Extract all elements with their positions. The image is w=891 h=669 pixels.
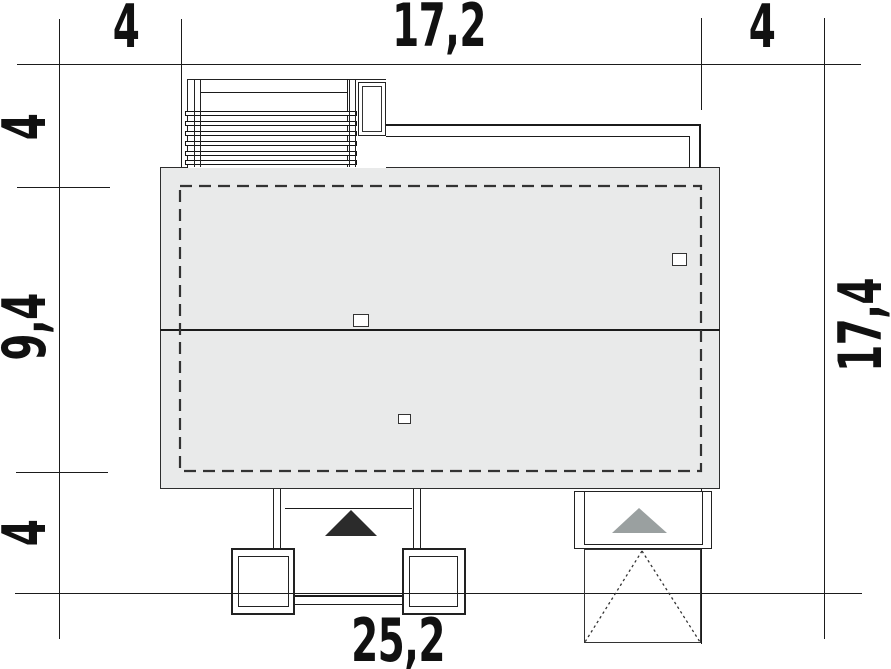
dim-label-left-top: 4 bbox=[0, 114, 55, 140]
driveway-gate-dotted-lines bbox=[584, 549, 702, 644]
entrance-arrow-icon bbox=[325, 510, 377, 536]
extension-line-left-wall bbox=[181, 19, 182, 168]
porch-column-right-inner bbox=[409, 556, 458, 607]
pergola-slat bbox=[185, 121, 357, 126]
wall-outline-dashed bbox=[160, 167, 720, 489]
pergola-slat bbox=[185, 160, 357, 165]
pergola-slat bbox=[185, 141, 357, 146]
chimney-inner-outline bbox=[362, 86, 382, 132]
pergola-slat bbox=[185, 151, 357, 156]
extension-line-right-wall-top bbox=[701, 18, 702, 110]
eaves-outline-inner bbox=[386, 136, 690, 168]
extension-tick-left-lower bbox=[16, 472, 108, 473]
dim-label-top-right: 4 bbox=[749, 0, 775, 57]
roof-window-icon bbox=[353, 314, 369, 327]
pergola-beam-right bbox=[349, 79, 356, 167]
dim-label-bottom-total: 25,2 bbox=[351, 611, 445, 669]
roof-window-icon bbox=[398, 414, 411, 424]
dimension-line-top bbox=[17, 64, 861, 65]
dim-label-left-middle: 9,4 bbox=[0, 293, 55, 360]
pergola-inner-line bbox=[200, 92, 347, 93]
porch-column-left-inner bbox=[238, 556, 289, 607]
porch-support-right bbox=[413, 489, 421, 548]
dim-label-left-bottom: 4 bbox=[0, 520, 55, 546]
dim-label-top-center: 17,2 bbox=[392, 0, 486, 56]
porch-step-line bbox=[295, 595, 402, 597]
pergola-slat bbox=[185, 111, 357, 116]
roof-window-icon bbox=[672, 253, 687, 266]
site-plan: 4 17,2 4 4 9,4 4 17,4 25,2 bbox=[0, 0, 891, 669]
dim-label-right-side: 17,4 bbox=[831, 278, 891, 372]
extension-tick-left-upper bbox=[17, 187, 110, 188]
pergola-slat bbox=[185, 131, 357, 136]
pergola-beam-left bbox=[194, 79, 201, 167]
garage-arrow-icon bbox=[612, 508, 667, 533]
dim-label-top-left: 4 bbox=[113, 0, 139, 57]
porch-support-left bbox=[273, 489, 281, 548]
